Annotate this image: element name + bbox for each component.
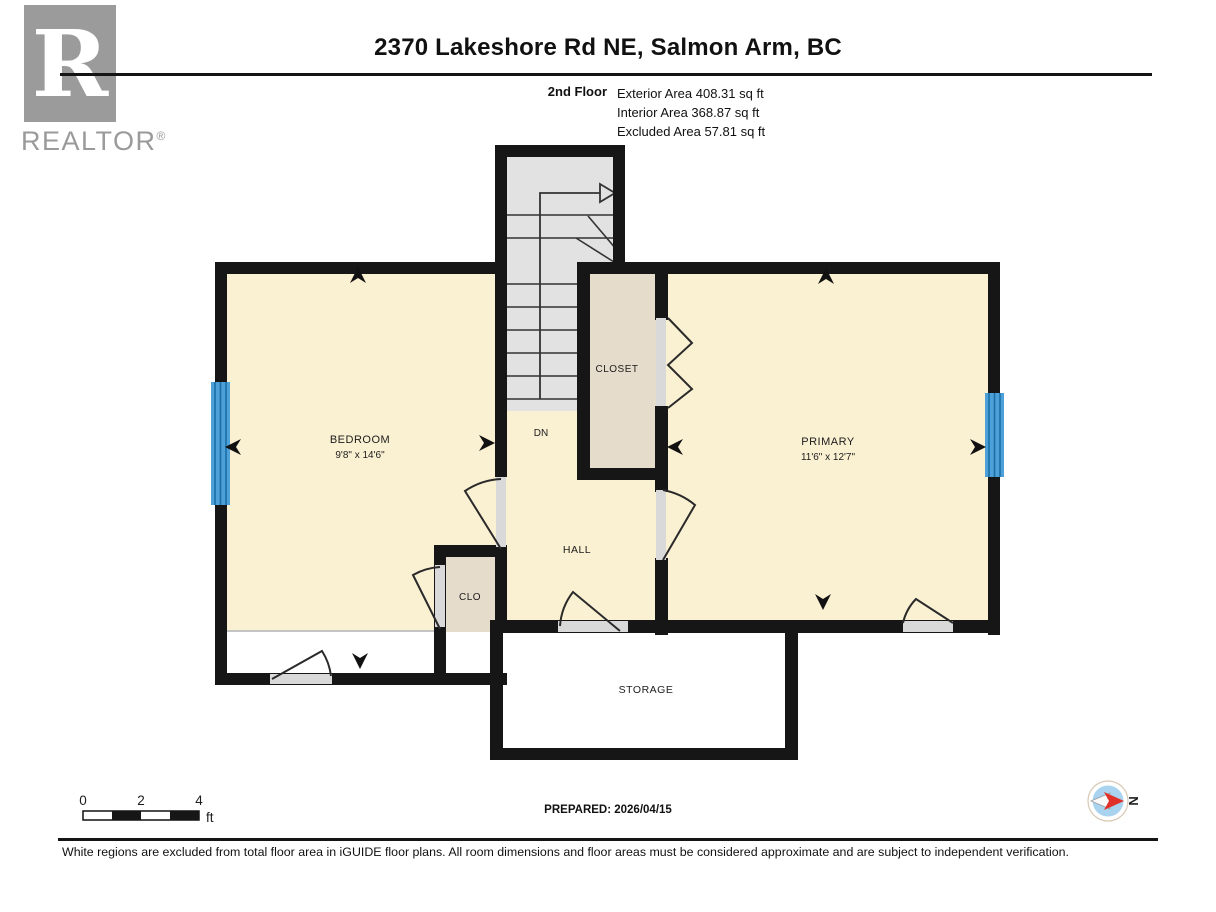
wall xyxy=(215,262,507,274)
door-threshold xyxy=(903,621,953,632)
wall xyxy=(495,547,507,632)
door-threshold xyxy=(558,621,628,632)
bedroom-label: BEDROOM xyxy=(330,434,390,446)
hall-label: HALL xyxy=(563,544,591,556)
primary-dimensions: 11'6" x 12'7" xyxy=(801,452,856,463)
wall xyxy=(495,145,625,157)
wall xyxy=(577,262,590,480)
floor-plan-page: R REALTOR® 2370 Lakeshore Rd NE, Salmon … xyxy=(0,0,1216,912)
wall xyxy=(577,468,668,480)
wall xyxy=(490,633,503,760)
disclaimer-text: White regions are excluded from total fl… xyxy=(62,845,1069,859)
wall xyxy=(785,620,798,760)
wall xyxy=(577,262,1000,274)
bedroom-dimensions: 9'8" x 14'6" xyxy=(335,450,385,461)
closet-label: CLOSET xyxy=(595,364,638,375)
primary-label: PRIMARY xyxy=(801,436,855,448)
stairs-dn-label: DN xyxy=(534,428,548,439)
wall xyxy=(655,262,668,320)
header-divider xyxy=(60,73,1152,76)
footer-divider xyxy=(58,838,1158,841)
prepared-date: PREPARED: 2026/04/15 xyxy=(0,804,1216,816)
wall xyxy=(215,673,507,685)
wall xyxy=(490,748,798,760)
door-threshold xyxy=(496,477,506,547)
clo-label: CLO xyxy=(459,592,481,603)
stairs-floor-upper xyxy=(507,153,617,267)
realtor-logo-r-icon: R xyxy=(32,18,108,110)
door-threshold xyxy=(435,565,445,627)
door-threshold xyxy=(656,318,666,406)
wall xyxy=(613,145,625,267)
wall xyxy=(495,145,507,477)
realtor-logo: R xyxy=(24,5,116,122)
storage-label: STORAGE xyxy=(619,684,674,696)
door-threshold xyxy=(656,490,666,560)
floor-plan-drawing: BEDROOM 9'8" x 14'6" PRIMARY 11'6" x 12'… xyxy=(0,0,1216,912)
